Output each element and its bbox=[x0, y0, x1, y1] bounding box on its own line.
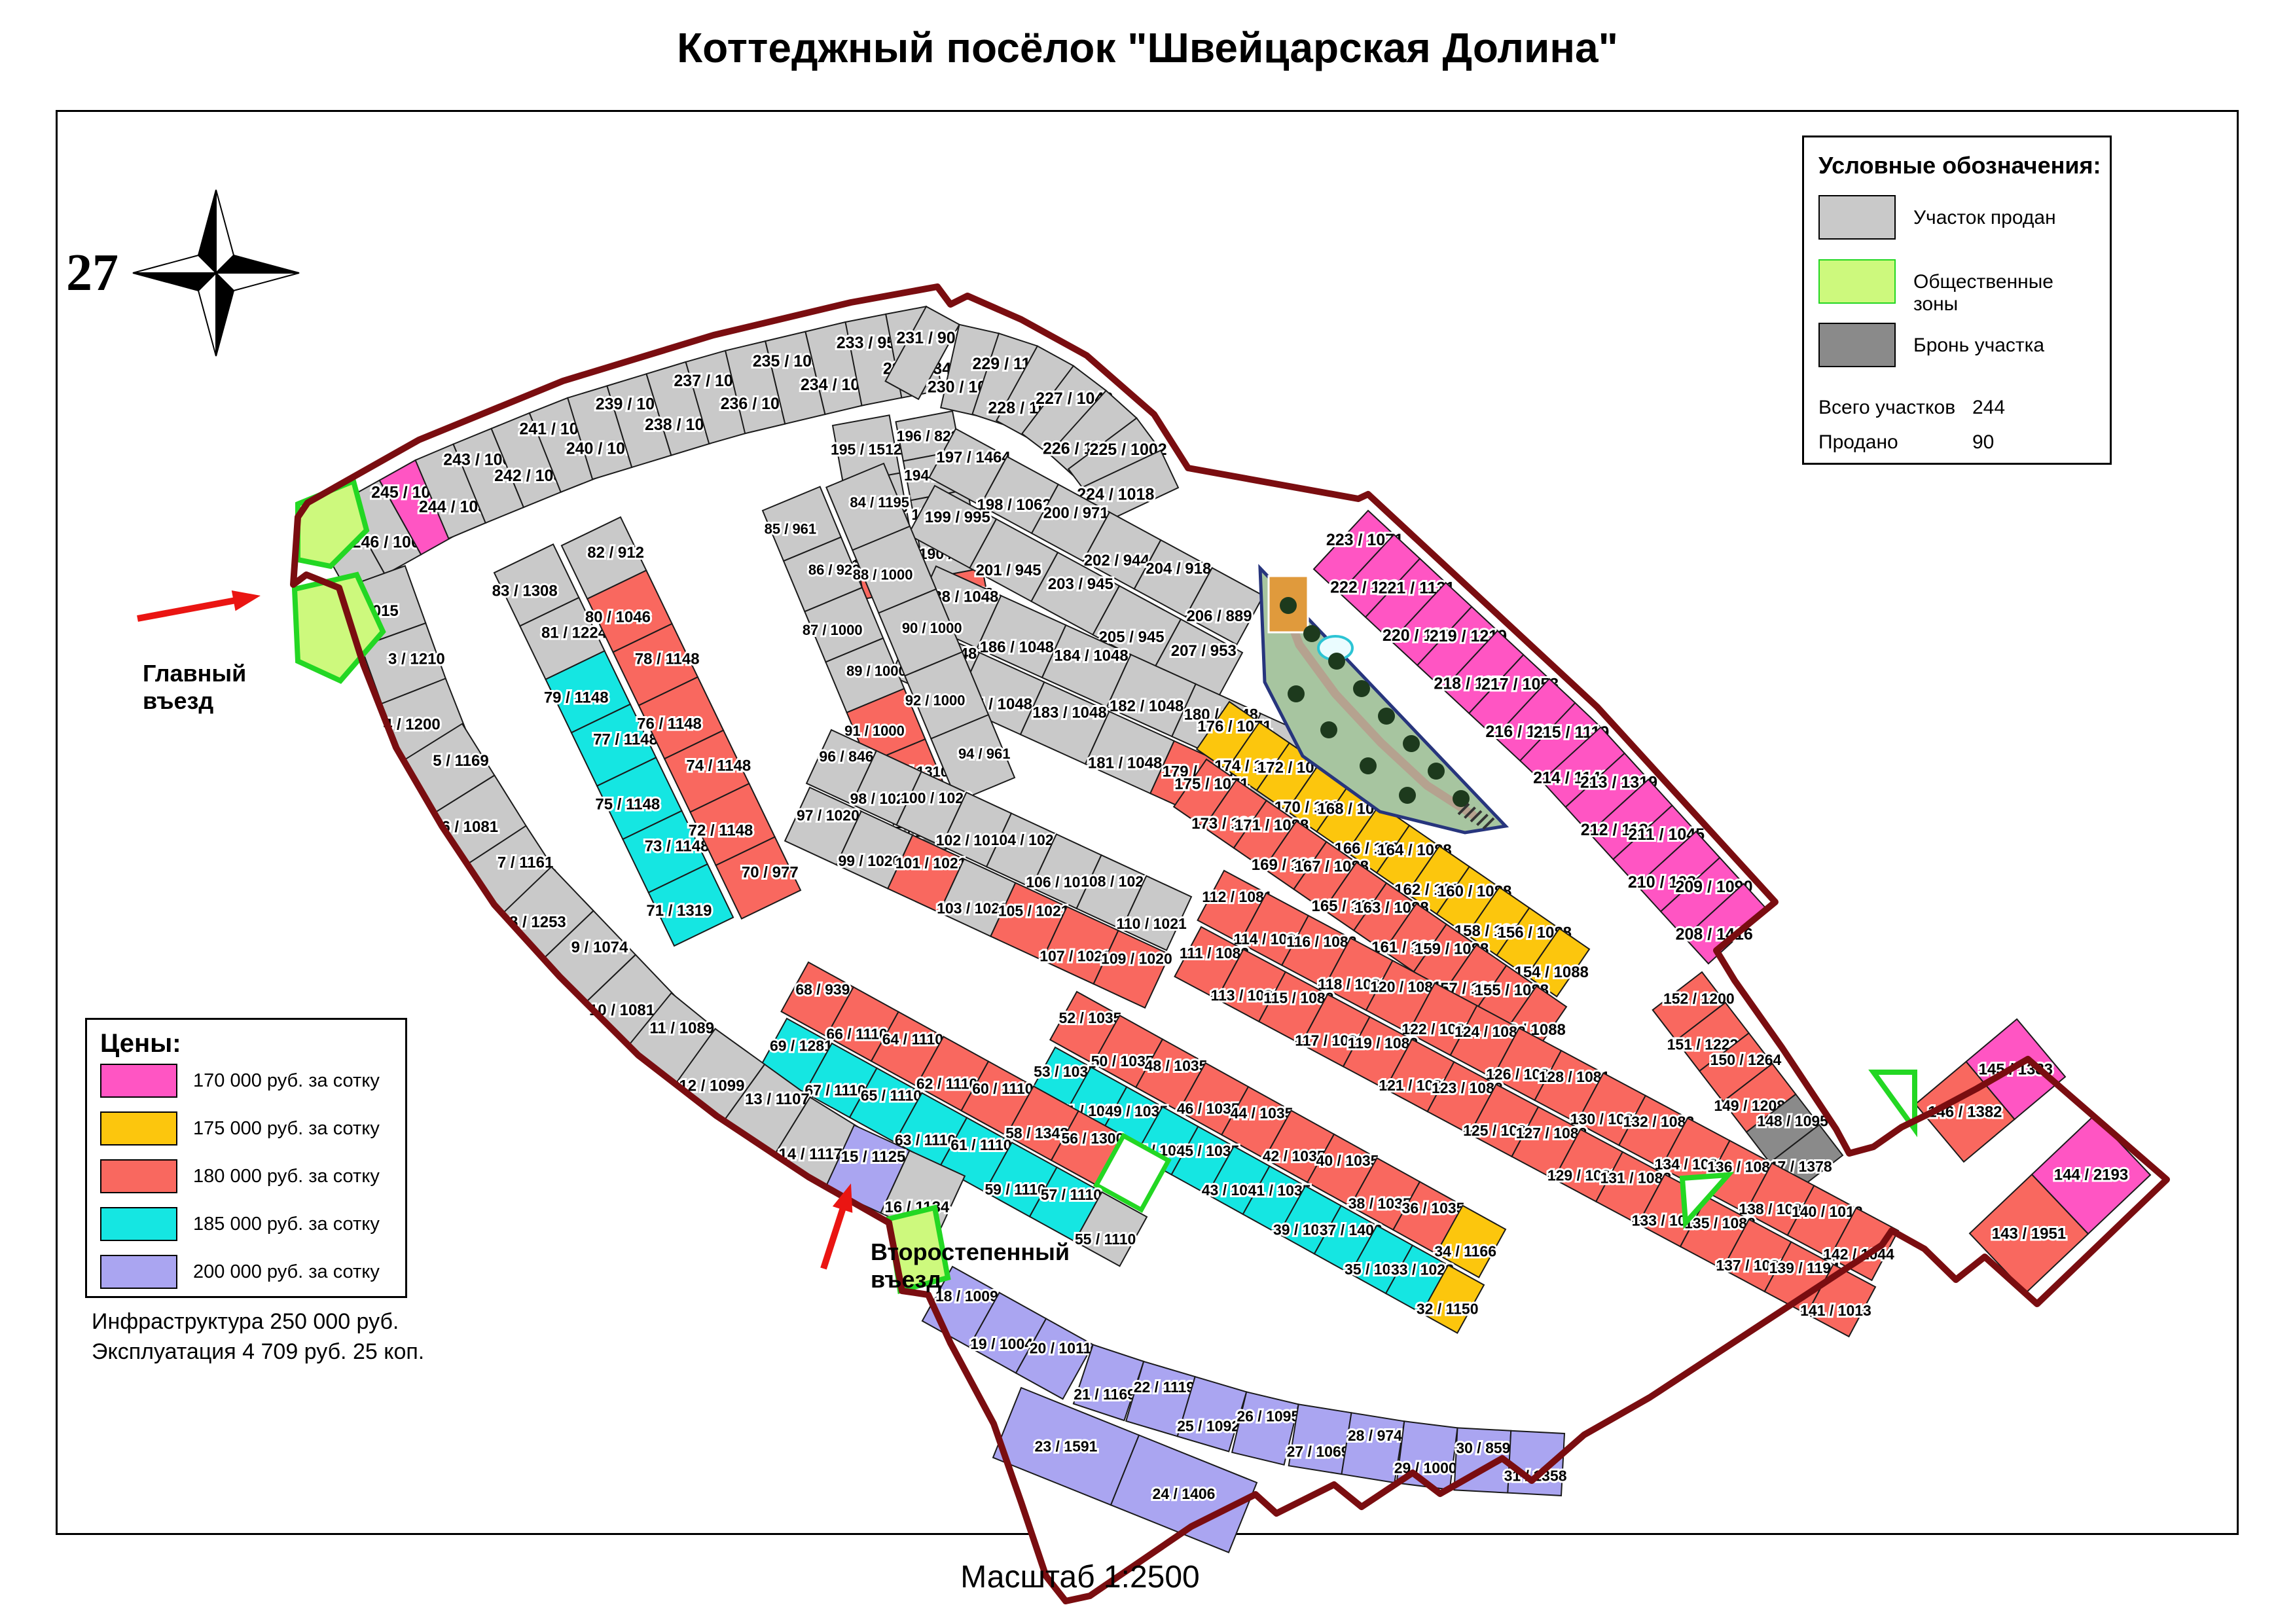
plot-label-94: 94 / 961 bbox=[958, 746, 1011, 762]
plot-label-40: 40 / 1035 bbox=[1316, 1152, 1379, 1169]
plot-label-77: 77 / 1148 bbox=[593, 731, 658, 749]
plot-label-74: 74 / 1148 bbox=[686, 757, 751, 775]
legend-box: Условные обозначения: Участок продан Общ… bbox=[1802, 135, 2112, 465]
legend-sold-row: Продано 90 bbox=[1818, 431, 2100, 454]
plot-label-15: 15 / 1125 bbox=[841, 1148, 906, 1166]
plot-label-56: 56 / 1300 bbox=[1061, 1130, 1124, 1147]
tree-icon bbox=[1353, 680, 1370, 697]
legend-sold-label: Продано bbox=[1818, 431, 1898, 453]
plot-label-58: 58 / 1348 bbox=[1005, 1125, 1068, 1142]
plot-label-90: 90 / 1000 bbox=[902, 620, 962, 636]
legend-label-sold: Участок продан bbox=[1913, 207, 2056, 229]
plot-label-59: 59 / 1110 bbox=[985, 1181, 1045, 1198]
price-label-180: 180 000 руб. за сотку bbox=[193, 1166, 380, 1187]
legend-total-row: Всего участков 244 bbox=[1818, 397, 2100, 419]
plot-label-103: 103 / 1020 bbox=[937, 900, 1008, 917]
plot-label-67: 67 / 1110 bbox=[804, 1082, 865, 1099]
plot-27 bbox=[1289, 1404, 1352, 1474]
price-label-185: 185 000 руб. за сотку bbox=[193, 1214, 380, 1235]
compass-w: 27 bbox=[66, 244, 118, 302]
price-swatch-185 bbox=[100, 1207, 177, 1241]
plot-label-181: 181 / 1048 bbox=[1088, 755, 1162, 772]
plot-label-71: 71 / 1319 bbox=[646, 902, 712, 920]
legend-total-value: 244 bbox=[1972, 397, 2005, 419]
plot-label-36: 36 / 1035 bbox=[1402, 1200, 1465, 1217]
plot-label-202: 202 / 944 bbox=[1084, 552, 1150, 569]
scale-label: Масштаб 1:2500 bbox=[0, 1559, 2160, 1595]
plot-label-186: 186 / 1048 bbox=[980, 639, 1054, 657]
plot-label-203: 203 / 945 bbox=[1048, 575, 1113, 593]
tree-icon bbox=[1403, 735, 1420, 752]
legend-swatch-booked bbox=[1818, 323, 1896, 367]
plot-label-144: 144 / 2193 bbox=[2054, 1166, 2128, 1184]
plot-label-79: 79 / 1148 bbox=[544, 689, 609, 707]
plot-label-91: 91 / 1000 bbox=[844, 723, 905, 739]
plot-label-199: 199 / 995 bbox=[925, 509, 990, 526]
plot-label-184: 184 / 1048 bbox=[1054, 647, 1128, 665]
plot-label-75: 75 / 1148 bbox=[595, 795, 660, 813]
tree-icon bbox=[1428, 763, 1445, 780]
plot-label-80: 80 / 1046 bbox=[585, 609, 651, 626]
plot-label-55: 55 / 1110 bbox=[1075, 1231, 1136, 1248]
plot-label-28: 28 / 974 bbox=[1348, 1427, 1402, 1444]
plot-label-81: 81 / 1224 bbox=[541, 624, 607, 642]
plot-label-11: 11 / 1089 bbox=[649, 1020, 714, 1038]
plot-label-205: 205 / 945 bbox=[1099, 628, 1165, 646]
plot-label-64: 64 / 1110 bbox=[882, 1030, 943, 1047]
legend-swatch-public bbox=[1818, 259, 1896, 304]
tree-icon bbox=[1303, 625, 1320, 642]
plot-label-69: 69 / 1281 bbox=[770, 1038, 833, 1055]
plot-label-99: 99 / 1020 bbox=[838, 852, 901, 869]
price-label-170: 170 000 руб. за сотку bbox=[193, 1070, 380, 1092]
plot-label-21: 21 / 1169 bbox=[1074, 1386, 1136, 1403]
plot-label-72: 72 / 1148 bbox=[689, 821, 753, 839]
price-label-175: 175 000 руб. за сотку bbox=[193, 1118, 380, 1140]
plot-label-183: 183 / 1048 bbox=[1032, 704, 1106, 722]
plot-label-105: 105 / 1021 bbox=[998, 902, 1070, 919]
price-label-200: 200 000 руб. за сотку bbox=[193, 1261, 380, 1283]
plot-label-92: 92 / 1000 bbox=[905, 693, 966, 709]
plot-label-207: 207 / 953 bbox=[1171, 642, 1237, 660]
legend-label-booked: Бронь участка bbox=[1913, 334, 2044, 357]
plot-label-25: 25 / 1092 bbox=[1177, 1418, 1240, 1435]
plot-label-76: 76 / 1148 bbox=[637, 715, 702, 732]
plot-label-109: 109 / 1020 bbox=[1101, 950, 1172, 967]
plot-label-26: 26 / 1095 bbox=[1237, 1408, 1299, 1425]
plot-label-197: 197 / 1464 bbox=[936, 449, 1011, 467]
plot-label-32: 32 / 1150 bbox=[1417, 1300, 1479, 1317]
plot-label-143: 143 / 1951 bbox=[1992, 1225, 2066, 1243]
main-entrance-label: Главный въезд bbox=[143, 660, 246, 715]
plot-label-61: 61 / 1110 bbox=[950, 1136, 1011, 1153]
plot-label-101: 101 / 1021 bbox=[895, 855, 967, 872]
plot-label-195: 195 / 1512 bbox=[831, 441, 902, 458]
plot-label-19: 19 / 1004 bbox=[970, 1335, 1033, 1352]
plot-label-204: 204 / 918 bbox=[1146, 560, 1211, 578]
plot-label-30: 30 / 859 bbox=[1456, 1439, 1510, 1456]
maintenance-note: Эксплуатация 4 709 руб. 25 коп. bbox=[92, 1339, 424, 1365]
plot-label-70: 70 / 977 bbox=[742, 863, 799, 881]
infrastructure-note: Инфраструктура 250 000 руб. bbox=[92, 1309, 399, 1335]
tree-icon bbox=[1280, 597, 1297, 614]
plot-label-34: 34 / 1166 bbox=[1434, 1242, 1496, 1259]
price-swatch-170 bbox=[100, 1064, 177, 1098]
plot-label-96: 96 / 846 bbox=[819, 748, 873, 765]
tree-icon bbox=[1288, 685, 1305, 702]
plot-label-62: 62 / 1110 bbox=[916, 1075, 977, 1092]
tree-icon bbox=[1320, 721, 1337, 738]
prices-title: Цены: bbox=[100, 1029, 181, 1058]
plot-label-65: 65 / 1110 bbox=[861, 1087, 922, 1104]
plot-label-82: 82 / 912 bbox=[587, 544, 644, 562]
compass-icon: 27 bbox=[66, 190, 299, 356]
plot-label-88: 88 / 1000 bbox=[853, 567, 913, 583]
plot-label-29: 29 / 1000 bbox=[1394, 1459, 1457, 1476]
plot-label-107: 107 / 1020 bbox=[1039, 948, 1111, 965]
plot-label-7: 7 / 1161 bbox=[497, 854, 553, 872]
plot-label-97: 97 / 1020 bbox=[797, 807, 859, 824]
legend-sold-value: 90 bbox=[1972, 431, 1994, 454]
plot-label-5: 5 / 1169 bbox=[433, 752, 488, 770]
price-swatch-175 bbox=[100, 1111, 177, 1146]
tree-icon bbox=[1378, 708, 1395, 725]
main-entrance-arrow-icon bbox=[137, 590, 261, 619]
plot-label-141: 141 / 1013 bbox=[1800, 1302, 1871, 1319]
plot-label-73: 73 / 1148 bbox=[645, 837, 710, 855]
plot-label-23: 23 / 1591 bbox=[1035, 1438, 1098, 1455]
plot-label-89: 89 / 1000 bbox=[846, 662, 907, 679]
plot-label-182: 182 / 1048 bbox=[1110, 698, 1184, 715]
secondary-entrance-label: Второстепенный въезд bbox=[871, 1238, 1070, 1293]
plot-label-48: 48 / 1035 bbox=[1145, 1057, 1208, 1074]
plot-label-13: 13 / 1107 bbox=[745, 1091, 810, 1108]
main-entrance-arrow-icon-shaft bbox=[137, 599, 244, 619]
legend-swatch-sold bbox=[1818, 195, 1896, 240]
plot-label-201: 201 / 945 bbox=[976, 562, 1041, 579]
tree-icon bbox=[1360, 757, 1377, 774]
legend-total-label: Всего участков bbox=[1818, 397, 1955, 418]
plot-label-9: 9 / 1074 bbox=[571, 939, 628, 956]
tree-icon bbox=[1328, 653, 1345, 670]
plot-label-63: 63 / 1110 bbox=[895, 1131, 956, 1148]
plot-label-52: 52 / 1035 bbox=[1059, 1009, 1122, 1026]
plot-label-24: 24 / 1406 bbox=[1153, 1485, 1216, 1502]
tree-icon bbox=[1399, 787, 1416, 804]
plot-label-200: 200 / 971 bbox=[1043, 505, 1109, 522]
plot-label-3: 3 / 1210 bbox=[388, 650, 445, 668]
plot-label-206: 206 / 889 bbox=[1186, 607, 1252, 625]
price-swatch-200 bbox=[100, 1255, 177, 1289]
plot-label-110: 110 / 1021 bbox=[1116, 915, 1187, 932]
price-swatch-180 bbox=[100, 1159, 177, 1193]
plot-label-27: 27 / 1069 bbox=[1287, 1443, 1350, 1460]
plot-label-85: 85 / 961 bbox=[765, 521, 817, 537]
plot-label-20: 20 / 1011 bbox=[1030, 1339, 1092, 1356]
plot-label-60: 60 / 1110 bbox=[972, 1080, 1033, 1097]
plot-label-66: 66 / 1110 bbox=[826, 1026, 887, 1043]
plot-label-44: 44 / 1035 bbox=[1231, 1104, 1293, 1121]
prices-box: Цены: 170 000 руб. за сотку 175 000 руб.… bbox=[85, 1018, 407, 1298]
legend-title: Условные обозначения: bbox=[1818, 152, 2101, 179]
plot-label-78: 78 / 1148 bbox=[635, 651, 700, 668]
legend-label-public: Общественные зоны bbox=[1913, 271, 2100, 316]
plot-label-84: 84 / 1195 bbox=[850, 494, 909, 511]
plot-label-83: 83 / 1308 bbox=[492, 583, 558, 600]
plot-label-22: 22 / 1119 bbox=[1134, 1379, 1195, 1396]
plot-label-57: 57 / 1110 bbox=[1041, 1186, 1102, 1203]
plot-label-68: 68 / 939 bbox=[795, 981, 850, 998]
main-entrance-arrow-icon-head bbox=[232, 590, 261, 611]
plot-label-87: 87 / 1000 bbox=[803, 622, 863, 638]
